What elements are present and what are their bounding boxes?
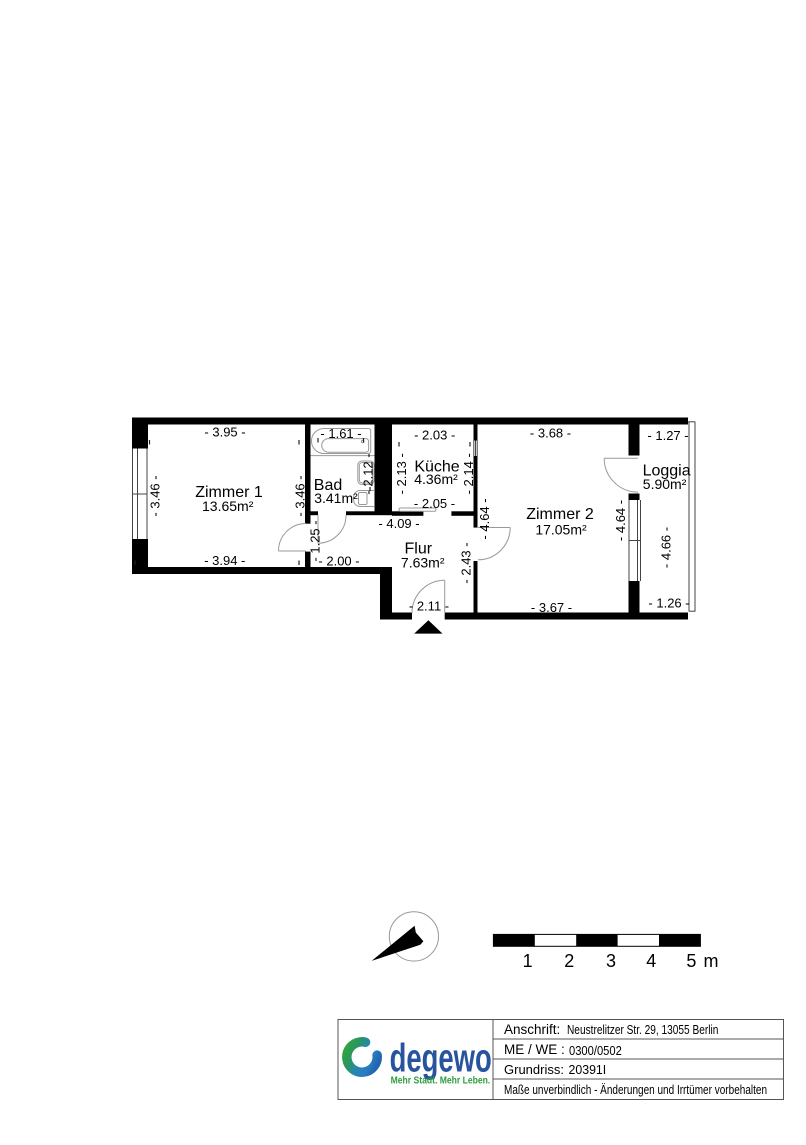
svg-text:4: 4	[646, 951, 656, 971]
svg-text:Maße unverbindlich - Änderunge: Maße unverbindlich - Änderungen und Irrt…	[504, 1083, 767, 1098]
svg-text:1: 1	[523, 951, 533, 971]
svg-text:- 2.11 -: - 2.11 -	[409, 599, 449, 614]
svg-text:3.41m²: 3.41m²	[314, 490, 358, 506]
svg-text:- 4.09 -: - 4.09 -	[378, 516, 419, 531]
svg-text:- 3.67 -: - 3.67 -	[531, 600, 572, 615]
svg-text:- 4.64 -: - 4.64 -	[613, 500, 628, 541]
svg-text:Anschrift:: Anschrift:	[504, 1022, 560, 1037]
svg-text:Neustrelitzer Str. 29, 13055: Neustrelitzer Str. 29, 13055 Berlin	[567, 1023, 718, 1037]
svg-text:- 3.95 -: - 3.95 -	[204, 425, 245, 440]
svg-text:- 2.13 -: - 2.13 -	[394, 453, 409, 494]
svg-text:- 1.27 -: - 1.27 -	[647, 428, 688, 443]
svg-text:Mehr Stadt. Mehr Leben.: Mehr Stadt. Mehr Leben.	[391, 1075, 491, 1086]
svg-text:- 2.03 -: - 2.03 -	[414, 428, 455, 443]
svg-text:17.05m²: 17.05m²	[535, 522, 587, 538]
svg-text:Zimmer 2: Zimmer 2	[526, 506, 594, 523]
svg-text:- 3.94 -: - 3.94 -	[204, 553, 245, 568]
svg-text:- 2.12 -: - 2.12 -	[361, 453, 376, 494]
svg-text:- 1.61 -: - 1.61 -	[320, 426, 361, 441]
svg-text:Grundriss:: Grundriss:	[504, 1062, 564, 1077]
svg-text:- 4.64 -: - 4.64 -	[477, 498, 492, 539]
svg-text:- 3.46 -: - 3.46 -	[148, 475, 163, 516]
svg-text:0300/0502: 0300/0502	[569, 1043, 622, 1058]
svg-text:- 2.05 -: - 2.05 -	[414, 496, 455, 511]
svg-text:5: 5	[686, 951, 696, 971]
svg-text:3: 3	[606, 951, 616, 971]
svg-text:4.36m²: 4.36m²	[414, 471, 458, 487]
svg-text:- 3.68 -: - 3.68 -	[530, 426, 571, 441]
svg-text:2: 2	[564, 951, 574, 971]
svg-text:- 2.14 -: - 2.14 -	[461, 453, 476, 494]
svg-text:- 2.00 -: - 2.00 -	[318, 554, 359, 569]
svg-text:m: m	[704, 951, 719, 971]
svg-text:- 3.46 -: - 3.46 -	[292, 475, 307, 516]
svg-text:20391I: 20391I	[569, 1063, 607, 1077]
svg-text:13.65m²: 13.65m²	[202, 498, 254, 514]
svg-text:7.63m²: 7.63m²	[401, 555, 445, 571]
svg-text:- 1.25 -: - 1.25 -	[308, 520, 323, 561]
svg-text:- 1.26 -: - 1.26 -	[648, 596, 689, 611]
svg-text:ME / WE :: ME / WE :	[504, 1042, 565, 1057]
svg-text:- 4.66 -: - 4.66 -	[658, 527, 673, 568]
svg-text:- 2.43 -: - 2.43 -	[459, 542, 474, 583]
svg-text:5.90m²: 5.90m²	[643, 476, 687, 492]
